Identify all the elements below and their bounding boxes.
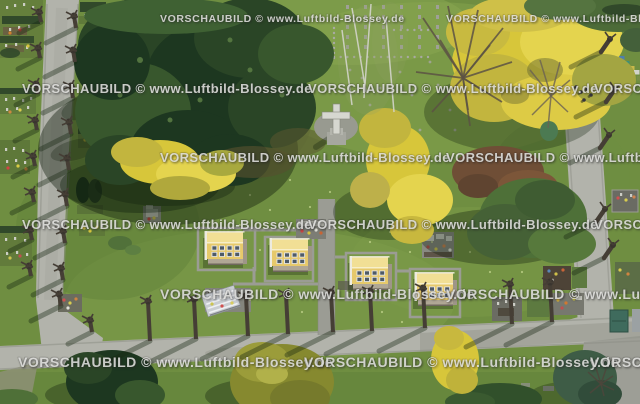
watermark-text: VORSCHAUBILD © www.Luftbild-Blossey.de — [446, 286, 640, 302]
watermark-text: VORSCHAUBILD © www.Luftbild-Blossey.de — [22, 217, 312, 232]
watermark-text: VORSCHAUBILD © www.Luftbild-Blossey.de — [446, 13, 640, 25]
watermark-text: VORSCHAUBILD © www.Luftbild-Blossey.de — [22, 81, 312, 96]
watermark-text: VORSCHAUBILD © www.Luftbild-Blossey.de — [160, 13, 405, 25]
watermark-layer: VORSCHAUBILD © www.Luftbild-Blossey.deVO… — [0, 0, 640, 404]
watermark-text: VORSCHAUBILD © www.Luftbild-Blossey.de — [594, 81, 640, 96]
watermark-text: VORSCHAUBILD © www.Luftbild-Blossey.de — [160, 286, 475, 302]
watermark-text: VORSCHAUBILD © www.Luftbild-Blossey.de — [308, 217, 598, 232]
watermark-text: VORSCHAUBILD © www.Luftbild-Blossey.de — [446, 150, 640, 165]
watermark-text: VORSCHAUBILD © www.Luftbild-Blossey.de — [160, 150, 450, 165]
aerial-photo-cemetery: VORSCHAUBILD © www.Luftbild-Blossey.deVO… — [0, 0, 640, 404]
watermark-text: VORSCHAUBILD © www.Luftbild-Blossey.de — [594, 217, 640, 232]
watermark-text: VORSCHAUBILD © www.Luftbild-Blossey.de — [18, 354, 333, 370]
watermark-text: VORSCHAUBILD © www.Luftbild-Blossey.de — [308, 81, 598, 96]
watermark-text: VORSCHAUBILD © www.Luftbild-Blossey.de — [590, 354, 640, 370]
watermark-text: VORSCHAUBILD © www.Luftbild-Blossey.de — [304, 354, 619, 370]
